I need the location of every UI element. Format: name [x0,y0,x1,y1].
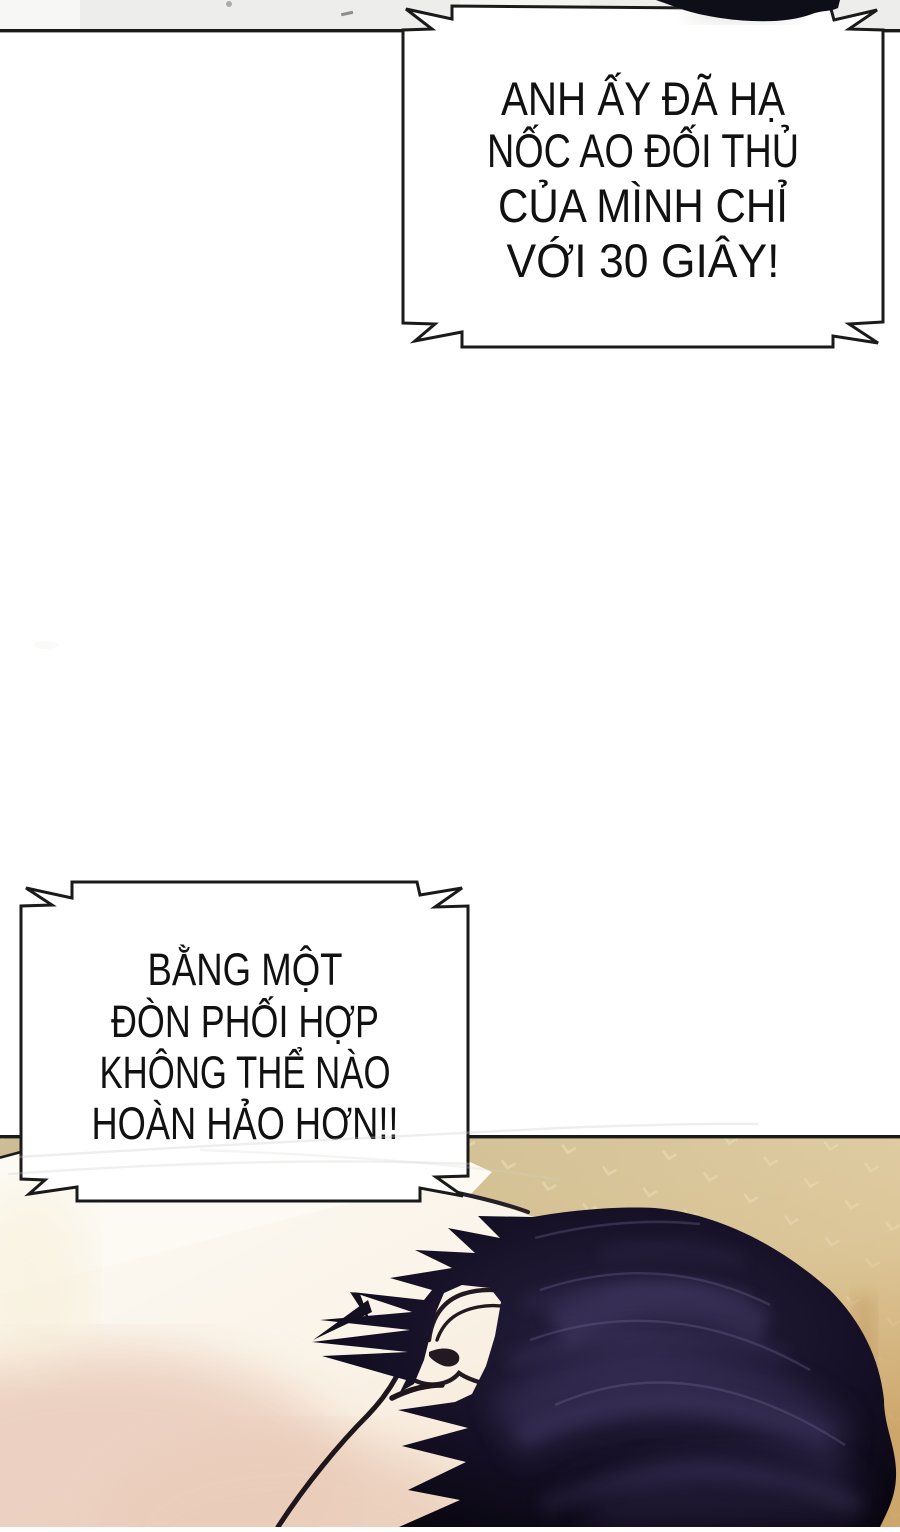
svg-text:HOÀN HẢO HƠN!!: HOÀN HẢO HƠN!! [92,1098,399,1149]
svg-text:BẰNG MỘT: BẰNG MỘT [148,944,343,995]
svg-text:ANH ẤY ĐÃ HẠ: ANH ẤY ĐÃ HẠ [501,72,786,125]
svg-text:KHÔNG THỂ NÀO: KHÔNG THỂ NÀO [100,1047,391,1098]
svg-text:ĐÒN PHỐI HỢP: ĐÒN PHỐI HỢP [111,996,379,1047]
svg-text:CỦA MÌNH CHỈ: CỦA MÌNH CHỈ [498,179,788,232]
svg-text:VỚI 30 GIÂY!: VỚI 30 GIÂY! [507,234,780,287]
svg-text:NỐC AO ĐỐI THỦ: NỐC AO ĐỐI THỦ [487,124,799,177]
